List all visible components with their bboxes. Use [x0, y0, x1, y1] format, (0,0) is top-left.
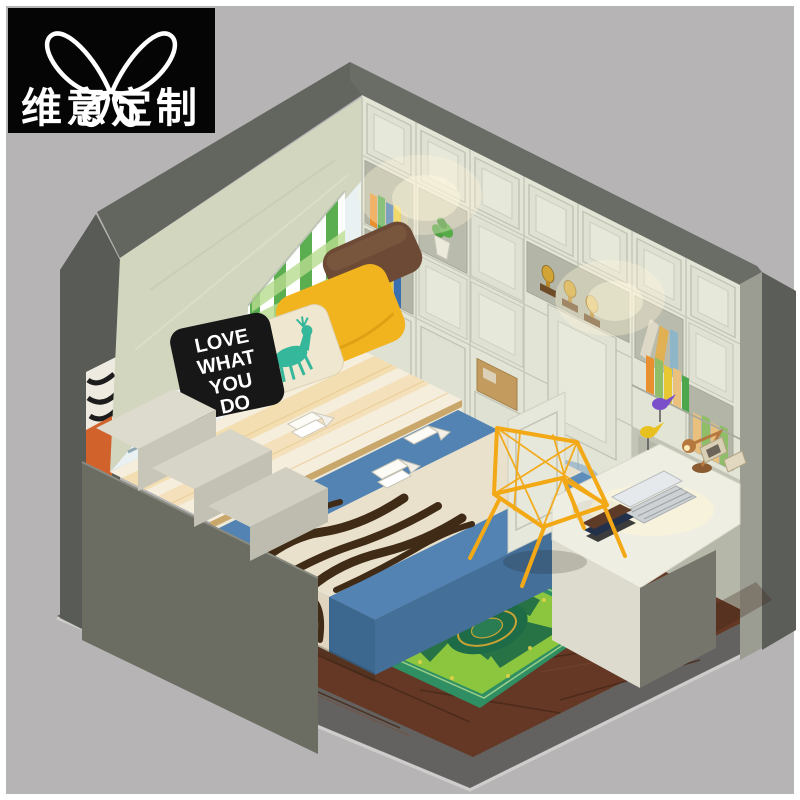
- room-render: LOVE WHAT YOU DO: [0, 0, 800, 800]
- brand-logo: 维意定制: [8, 8, 215, 133]
- brand-name: 维意定制: [21, 85, 201, 131]
- product-image: LOVE WHAT YOU DO: [0, 0, 800, 800]
